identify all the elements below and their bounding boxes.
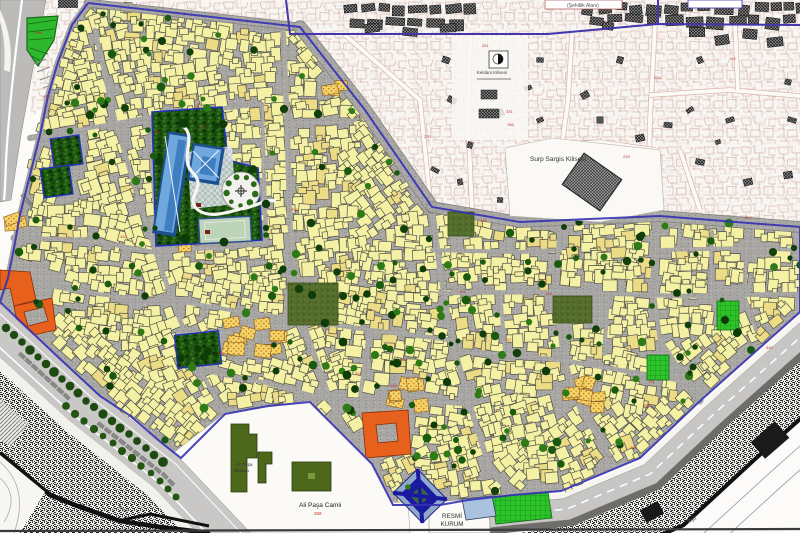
- svg-text:239: 239: [623, 154, 630, 159]
- svg-text:191: 191: [648, 379, 655, 384]
- svg-text:ilkokulu: ilkokulu: [234, 468, 250, 473]
- svg-text:453: 453: [630, 445, 637, 450]
- svg-text:189: 189: [545, 291, 552, 296]
- svg-text:Keldani Kilisesi: Keldani Kilisesi: [477, 70, 507, 75]
- svg-text:297: 297: [505, 337, 512, 342]
- svg-text:261: 261: [482, 43, 489, 48]
- svg-text:Park: Park: [34, 30, 42, 35]
- svg-text:408: 408: [390, 383, 397, 388]
- svg-text:254: 254: [654, 75, 661, 80]
- svg-text:254: 254: [643, 403, 650, 408]
- svg-text:442: 442: [120, 234, 127, 239]
- svg-text:KURUM: KURUM: [440, 521, 463, 528]
- svg-text:340: 340: [766, 345, 773, 350]
- svg-text:192: 192: [729, 56, 736, 61]
- svg-text:254: 254: [291, 207, 298, 212]
- svg-text:331: 331: [506, 109, 513, 114]
- svg-text:Surp Sargis Kilisesi: Surp Sargis Kilisesi: [530, 156, 586, 163]
- svg-text:270: 270: [424, 134, 431, 139]
- svg-text:235: 235: [195, 104, 202, 109]
- svg-text:186: 186: [480, 218, 487, 223]
- svg-text:156: 156: [507, 122, 514, 127]
- svg-text:RESMİ: RESMİ: [442, 511, 462, 520]
- svg-text:337: 337: [745, 215, 752, 220]
- svg-text:369: 369: [314, 511, 322, 516]
- svg-text:394: 394: [355, 371, 362, 376]
- svg-text:Ali Paşa Camii: Ali Paşa Camii: [299, 502, 341, 509]
- svg-text:470: 470: [217, 351, 224, 356]
- svg-text:Ali Paşa: Ali Paşa: [236, 462, 253, 467]
- svg-text:409: 409: [459, 289, 466, 294]
- svg-text:347: 347: [399, 357, 406, 362]
- svg-text:470: 470: [43, 94, 50, 99]
- svg-text:387: 387: [154, 129, 161, 134]
- svg-text:(Şehitlik Alanı): (Şehitlik Alanı): [567, 3, 599, 9]
- svg-text:307: 307: [199, 125, 206, 130]
